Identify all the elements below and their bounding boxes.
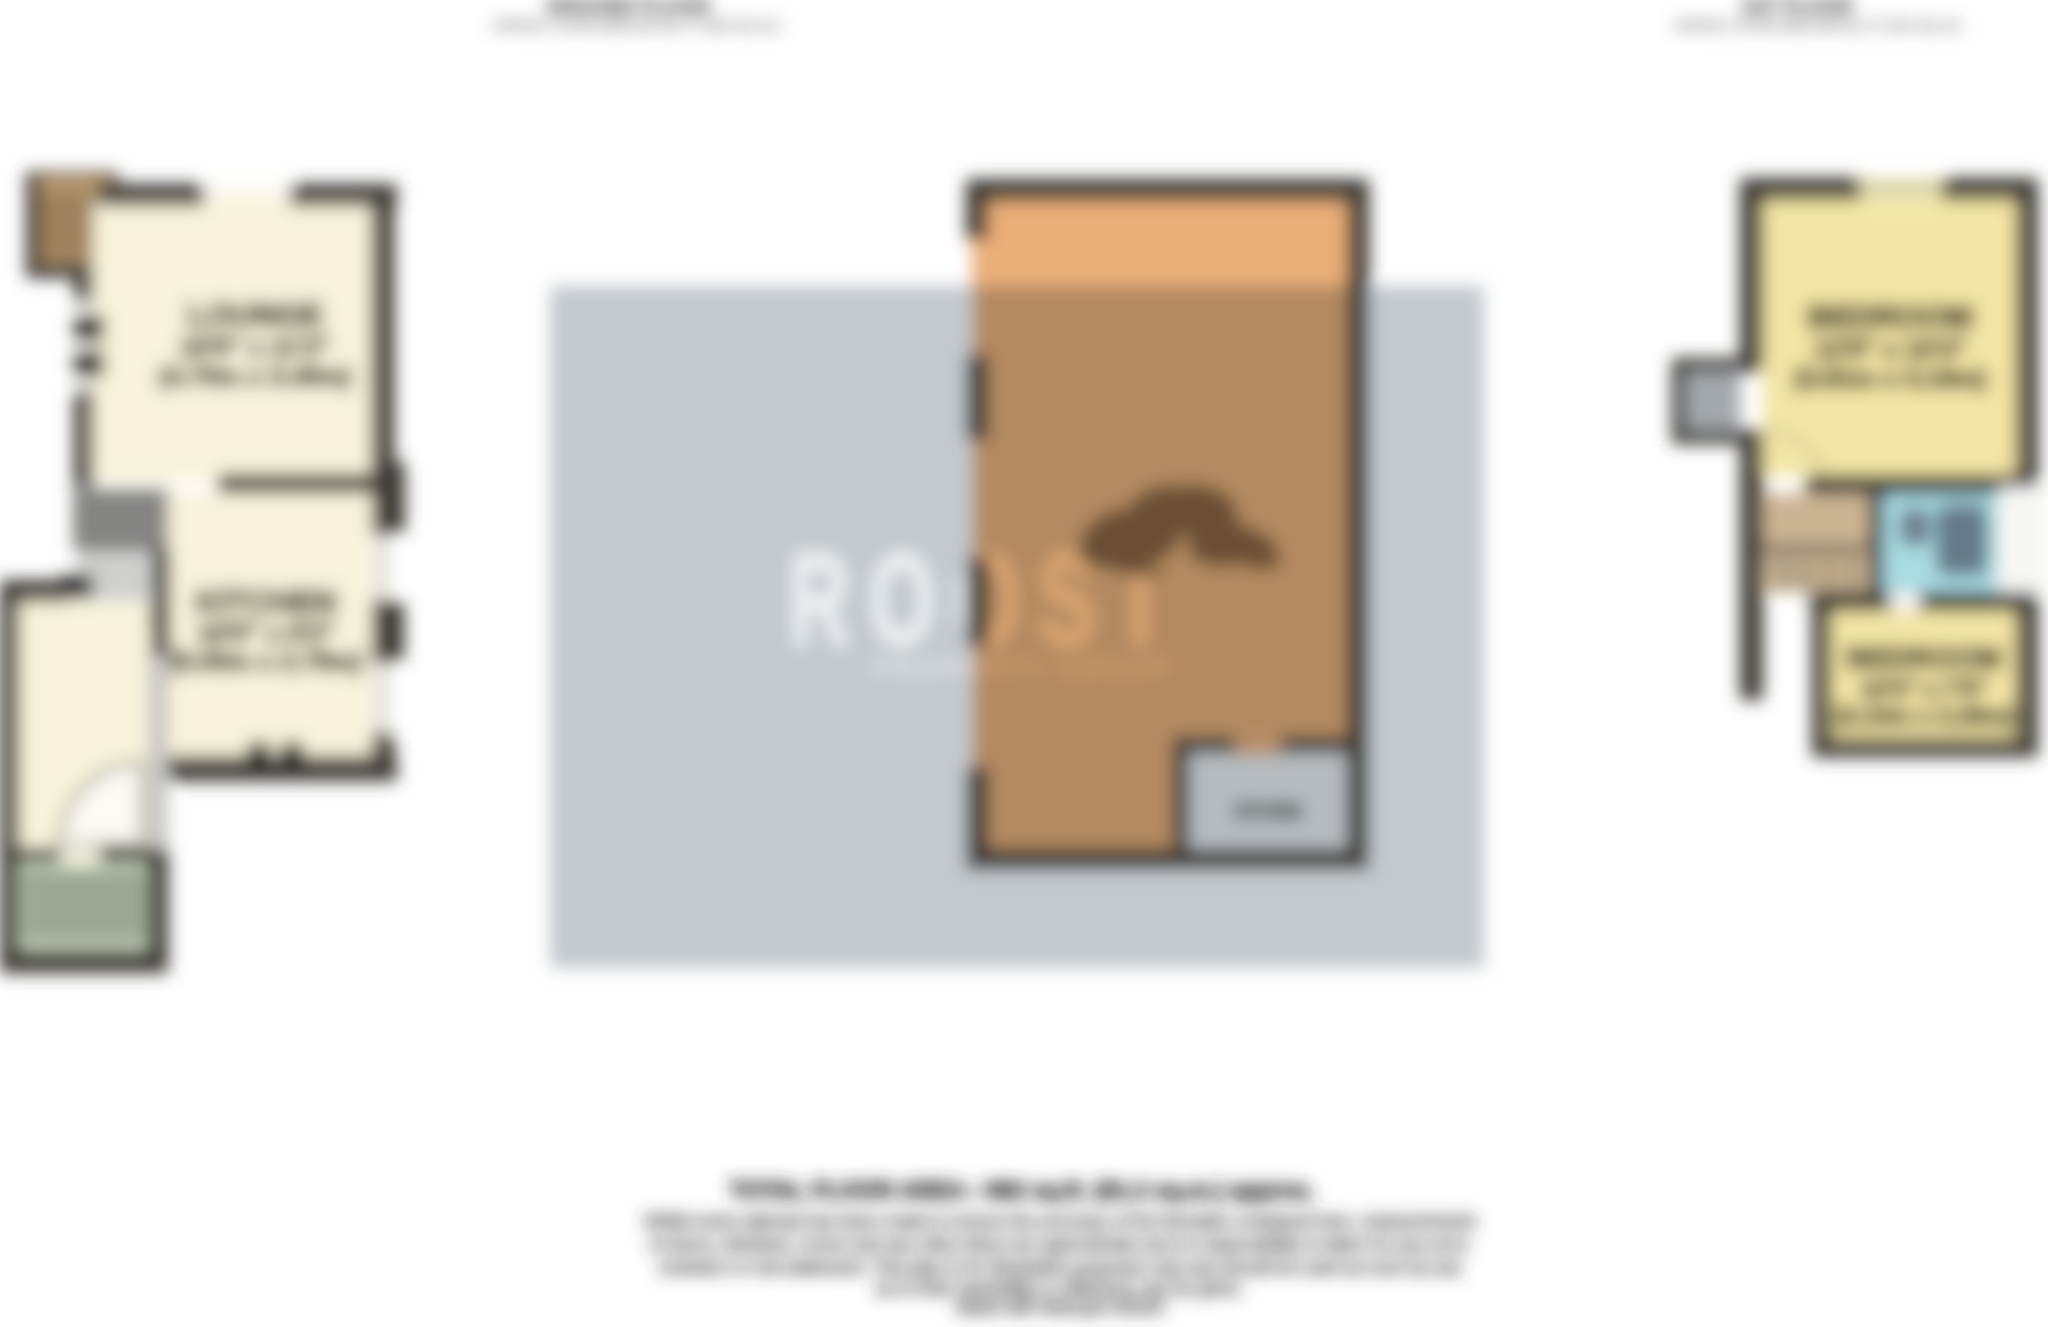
svg-text:APPROX. FLOOR AREA 358 SQ. FT.: APPROX. FLOOR AREA 358 SQ. FT. (33.3 SQ.… xyxy=(1675,19,1962,33)
svg-text:omission or mis-statement. Thi: omission or mis-statement. This plan is … xyxy=(658,1257,1461,1277)
svg-text:15'5" x 11'2": 15'5" x 11'2" xyxy=(179,332,330,362)
svg-text:16'5" x 9'2": 16'5" x 9'2" xyxy=(197,618,335,648)
svg-text:(5.00m x 2.79m): (5.00m x 2.79m) xyxy=(169,646,363,676)
svg-text:KITCHEN: KITCHEN xyxy=(195,584,337,620)
svg-text:10'2" x 7'5": 10'2" x 7'5" xyxy=(1860,676,1988,703)
svg-text:Made with Metropix ©2025: Made with Metropix ©2025 xyxy=(956,1297,1164,1317)
svg-text:LOUNGE: LOUNGE xyxy=(187,297,324,333)
svg-text:GROUND FLOOR: GROUND FLOOR xyxy=(546,0,711,18)
svg-text:(3.81m x 3.15m): (3.81m x 3.15m) xyxy=(1793,363,1987,393)
svg-text:1ST FLOOR: 1ST FLOOR xyxy=(1741,0,1854,18)
svg-text:(4.70m x 3.40m): (4.70m x 3.40m) xyxy=(158,361,352,391)
svg-text:as to their operability or eff: as to their operability or efficiency ca… xyxy=(876,1278,1244,1298)
svg-text:TOTAL FLOOR AREA : 982 sq.ft.: TOTAL FLOOR AREA : 982 sq.ft. (91.2 sq.m… xyxy=(729,1177,1315,1203)
svg-text:STORE: STORE xyxy=(1234,801,1303,823)
svg-text:APPROX. FLOOR AREA 624 SQ. FT.: APPROX. FLOOR AREA 624 SQ. FT. (58.0 SQ.… xyxy=(494,19,781,33)
svg-text:of doors, windows, rooms and a: of doors, windows, rooms and any other i… xyxy=(649,1234,1471,1254)
svg-text:Whilst every attempt has been: Whilst every attempt has been made to en… xyxy=(644,1211,1477,1231)
svg-text:12'6" x 10'4": 12'6" x 10'4" xyxy=(1814,334,1967,364)
svg-text:(3.10m x 2.26m): (3.10m x 2.26m) xyxy=(1835,703,2014,730)
svg-text:BEDROOM: BEDROOM xyxy=(1846,642,2003,675)
svg-text:BEDROOM: BEDROOM xyxy=(1806,299,1973,335)
